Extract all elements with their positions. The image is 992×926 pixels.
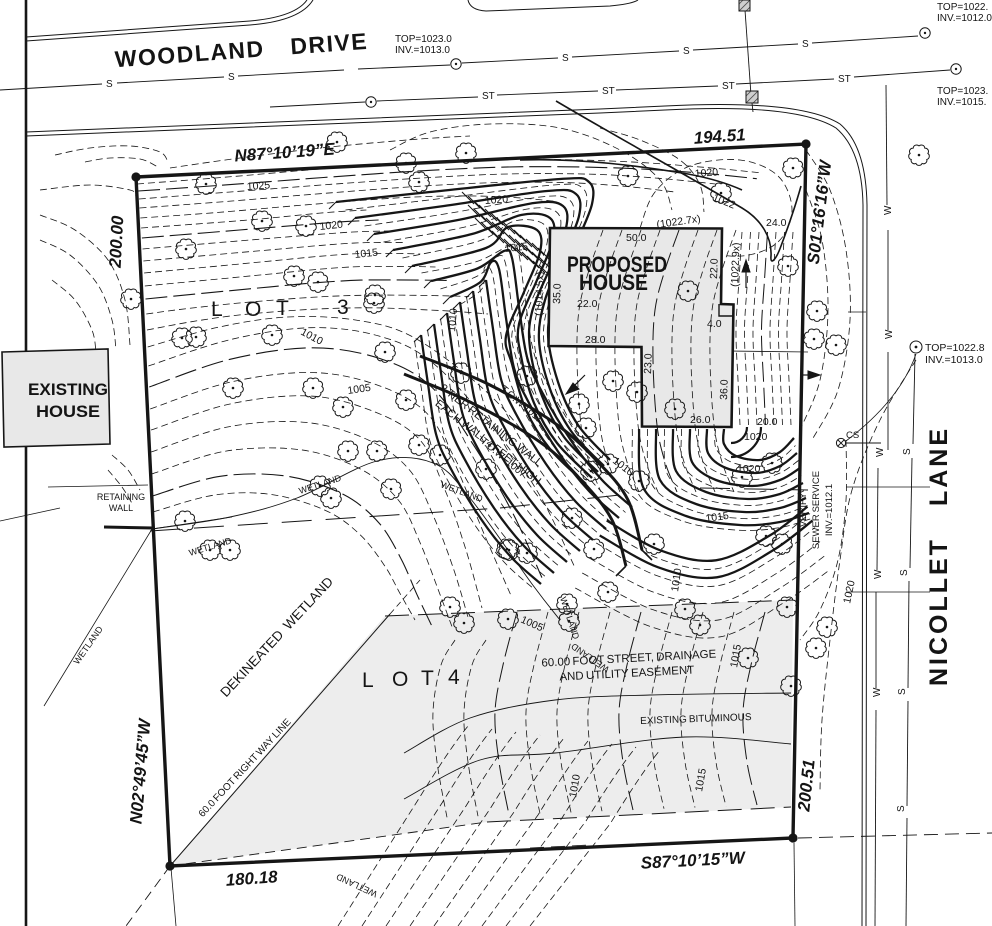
- svg-text:INV.=1015.: INV.=1015.: [937, 97, 986, 108]
- svg-text:W: W: [883, 205, 894, 215]
- svg-text:TOP=1022.8: TOP=1022.8: [925, 342, 985, 354]
- svg-text:T: T: [421, 667, 434, 690]
- svg-text:4.0: 4.0: [707, 318, 722, 330]
- svg-text:3: 3: [337, 296, 349, 319]
- svg-text:1020: 1020: [484, 193, 508, 207]
- svg-text:S: S: [802, 39, 809, 50]
- svg-text:INV.=1013.0: INV.=1013.0: [395, 45, 450, 56]
- svg-text:S: S: [106, 79, 113, 90]
- svg-text:22.0: 22.0: [708, 258, 721, 279]
- svg-text:TOP=1022.: TOP=1022.: [937, 2, 988, 13]
- svg-text:194.51: 194.51: [693, 125, 746, 148]
- svg-text:TOP=1023.0: TOP=1023.0: [395, 34, 452, 45]
- svg-text:INV.=1012.1: INV.=1012.1: [824, 484, 835, 536]
- svg-text:L: L: [362, 669, 374, 692]
- svg-text:(1014.5x): (1014.5x): [533, 271, 547, 316]
- svg-text:RETAINING: RETAINING: [97, 492, 145, 502]
- svg-text:35.0: 35.0: [551, 283, 564, 304]
- svg-text:S: S: [683, 46, 690, 57]
- svg-text:1020: 1020: [319, 219, 344, 233]
- svg-text:S: S: [228, 72, 235, 83]
- svg-text:T: T: [276, 297, 289, 320]
- svg-text:W: W: [875, 447, 886, 457]
- svg-text:INV.=1013.0: INV.=1013.0: [925, 354, 983, 366]
- svg-text:L: L: [211, 298, 223, 321]
- svg-text:ST: ST: [722, 81, 735, 92]
- svg-text:W: W: [884, 329, 895, 339]
- svg-text:1015: 1015: [354, 247, 379, 261]
- svg-text:26.0: 26.0: [690, 414, 711, 426]
- svg-text:TOP=1023.: TOP=1023.: [937, 86, 988, 97]
- svg-text:50.0: 50.0: [626, 232, 647, 244]
- svg-text:1015: 1015: [504, 241, 529, 255]
- svg-text:S: S: [562, 53, 569, 64]
- svg-text:HOUSE: HOUSE: [36, 402, 100, 421]
- svg-text:22.0: 22.0: [577, 298, 598, 310]
- svg-text:ST: ST: [838, 74, 851, 85]
- svg-text:S: S: [896, 805, 907, 812]
- svg-text:1020: 1020: [737, 463, 761, 475]
- svg-text:4: 4: [448, 666, 460, 689]
- svg-text:NICOLLET LANE: NICOLLET LANE: [925, 426, 953, 686]
- svg-text:HOUSE: HOUSE: [579, 270, 648, 295]
- svg-text:S: S: [902, 448, 913, 455]
- svg-text:W: W: [873, 569, 884, 579]
- svg-text:1010: 1010: [446, 308, 460, 332]
- svg-text:1020: 1020: [744, 431, 768, 443]
- svg-text:(1022.9x): (1022.9x): [729, 242, 743, 287]
- svg-text:SEWER SERVICE: SEWER SERVICE: [811, 471, 822, 549]
- svg-text:ST: ST: [602, 86, 615, 97]
- svg-text:S: S: [897, 688, 908, 695]
- svg-text:W: W: [872, 687, 883, 697]
- svg-text:20.0: 20.0: [757, 416, 778, 428]
- svg-text:28.0: 28.0: [585, 334, 606, 346]
- svg-text:EXISTING: EXISTING: [28, 380, 108, 399]
- svg-text:WALL: WALL: [109, 503, 133, 513]
- svg-text:O: O: [392, 668, 408, 691]
- svg-text:INV.=1012.0: INV.=1012.0: [937, 13, 992, 24]
- svg-text:23.0: 23.0: [642, 353, 655, 374]
- svg-text:1025: 1025: [246, 179, 270, 193]
- svg-text:ST: ST: [482, 91, 495, 102]
- svg-text:24.0: 24.0: [766, 217, 787, 229]
- svg-text:O: O: [245, 298, 261, 321]
- svg-text:200.00: 200.00: [106, 215, 128, 269]
- svg-text:S: S: [899, 569, 910, 576]
- svg-text:180.18: 180.18: [225, 867, 279, 890]
- svg-text:36.0: 36.0: [718, 379, 731, 400]
